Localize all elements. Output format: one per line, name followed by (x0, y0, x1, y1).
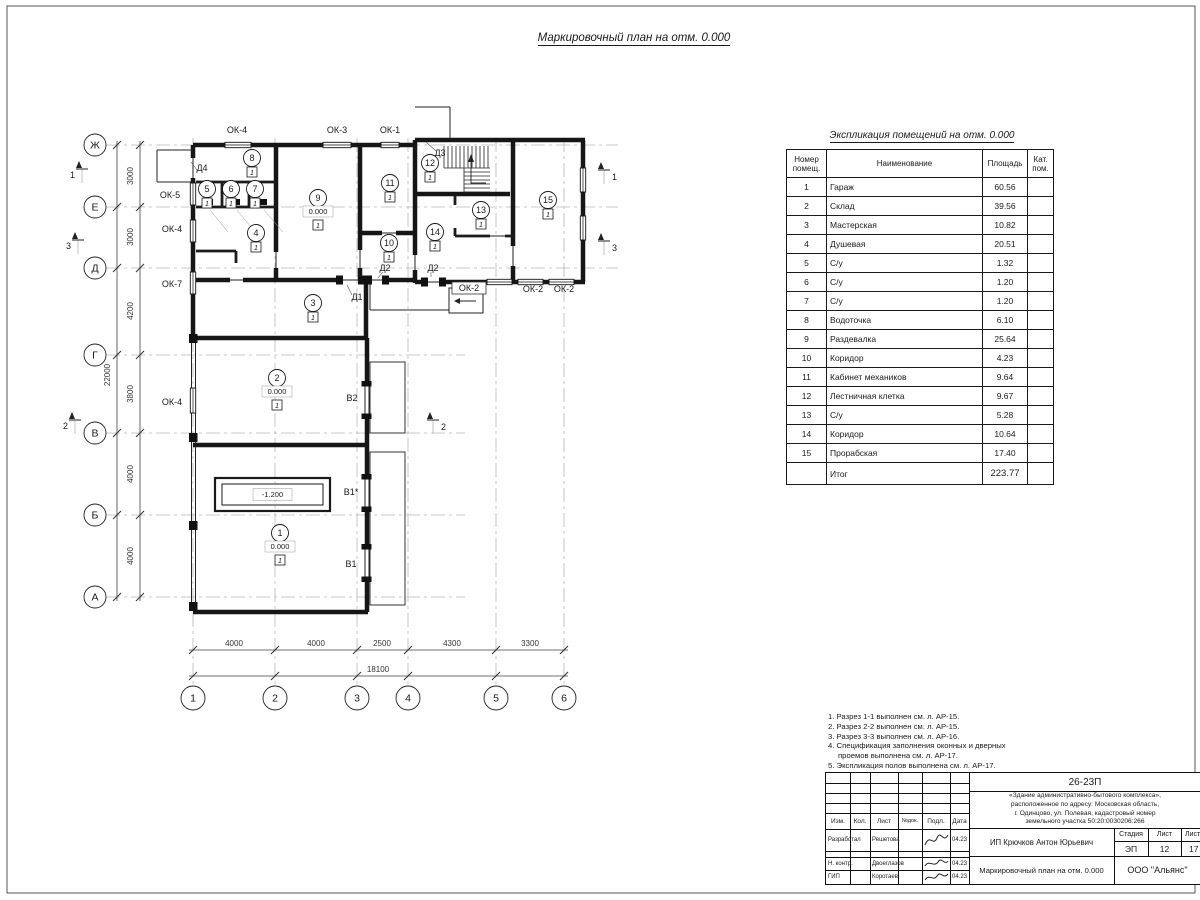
room-number-8: 8 (249, 153, 254, 163)
section-2-left: 2 (63, 421, 68, 431)
stamp-signature-gip (922, 870, 950, 884)
dim-left-3: 4200 (126, 302, 135, 320)
stamp-name-gip: Коротаев (870, 870, 922, 884)
section-1-left: 1 (70, 170, 75, 180)
axis-label-d: Д (91, 263, 98, 275)
dim-left-2: 3000 (126, 228, 135, 246)
note-line: 1. Разрез 1-1 выполнен см. л. АР-15. (828, 712, 1058, 722)
stamp-stage-label: Стадия (1114, 828, 1148, 841)
axis-label-b: Б (92, 510, 99, 522)
dimension-ticks (113, 141, 568, 680)
table-header-row: Номер помещ. Наименование Площадь Кат. п… (787, 150, 1054, 178)
stamp-date-ncontrol: 04.23 (950, 857, 969, 870)
svg-text:1: 1 (229, 201, 233, 208)
apron-upper (370, 362, 405, 433)
room-number-10: 10 (384, 238, 394, 248)
table-row: 4Душевая20.51 (787, 235, 1054, 254)
stamp-stage-value: ЭП (1114, 841, 1148, 856)
stamp-role-ncontrol: Н. контр. (826, 857, 870, 870)
room-schedule-title: Экспликация помещений на отм. 0.000 (786, 130, 1058, 141)
table-row: 5С/у1.32 (787, 254, 1054, 273)
room-number-13: 13 (476, 205, 486, 215)
title-block: Изм. Кол. Лист №док. Подл. Дата Разработ… (825, 772, 1200, 885)
axis-label-2: 2 (272, 693, 278, 705)
stamp-sheet-value: 12 (1148, 841, 1181, 856)
svg-text:1: 1 (253, 201, 257, 208)
stamp-col-kol: Кол. (850, 813, 870, 829)
drawing-sheet: { "sheet": { "plan_title": "Маркировочны… (0, 0, 1200, 900)
stamp-signature-developer (922, 829, 950, 851)
dim-bottom-3: 2500 (373, 639, 391, 648)
dimension-lines (117, 141, 568, 676)
window-label-ok4-left2: ОК-4 (162, 397, 182, 407)
section-3-right: 3 (612, 243, 617, 253)
stamp-date-developer: 04.23 (950, 829, 969, 851)
room-schedule-table: Номер помещ. Наименование Площадь Кат. п… (786, 149, 1054, 485)
svg-text:1: 1 (250, 170, 254, 177)
svg-text:1: 1 (428, 175, 432, 182)
stamp-sheet-label: Лист (1148, 828, 1181, 841)
section-3-left: 3 (66, 241, 71, 251)
section-markers: 1 3 2 1 3 2 (63, 161, 617, 434)
stamp-company: ООО "Альянс" (1114, 856, 1200, 884)
stamp-role-developer: Разработал (826, 829, 870, 851)
stamp-doc-number: 26-23П (969, 773, 1200, 791)
door-label-d1: Д1 (351, 292, 362, 302)
dim-bottom-5: 3300 (521, 639, 539, 648)
note-line: 5. Экспликация полов выполнена см. л. АР… (828, 761, 1058, 771)
axis-label-a: А (91, 592, 98, 604)
svg-text:1: 1 (388, 195, 392, 202)
stamp-name-ncontrol: Двоеглазов (870, 857, 922, 870)
col-header-num: Номер помещ. (787, 150, 827, 178)
stamp-sheets-value: 17 (1181, 841, 1200, 856)
stamp-col-list: Лист (870, 813, 898, 829)
gate-label-v1: В1 (345, 559, 356, 569)
svg-text:1: 1 (205, 201, 209, 208)
stamp-col-data: Дата (950, 813, 969, 829)
dim-left-total: 22000 (103, 363, 112, 386)
table-row: 14Коридор10.64 (787, 425, 1054, 444)
window-label-ok2c: ОК-2 (554, 284, 574, 294)
svg-text:1: 1 (254, 245, 258, 252)
window-label-ok4-left1: ОК-4 (162, 224, 182, 234)
table-row: 7С/у1.20 (787, 292, 1054, 311)
svg-text:1: 1 (433, 244, 437, 251)
room-number-14: 14 (430, 227, 440, 237)
note-line: проемов выполнена см. л. АР-17. (828, 751, 1058, 761)
table-row: 3Мастерская10.82 (787, 216, 1054, 235)
pit-elevation: -1.200 (262, 490, 283, 499)
note-line: 3. Разрез 3-3 выполнен см. л. АР-16. (828, 732, 1058, 742)
stamp-project-description: «Здание административно-бытового комплек… (969, 791, 1200, 828)
axis-label-1: 1 (190, 693, 196, 705)
stamp-name-developer: Решетова (870, 829, 922, 851)
window-label-ok4-top: ОК-4 (227, 125, 247, 135)
gate-label-v1s: В1* (344, 487, 359, 497)
window-label-ok7: ОК-7 (162, 279, 182, 289)
axis-label-5: 5 (493, 693, 499, 705)
room-number-12: 12 (425, 158, 435, 168)
svg-text:1: 1 (479, 222, 483, 229)
room-number-5: 5 (204, 184, 209, 194)
room-number-15: 15 (543, 195, 553, 205)
table-row: 11Кабинет механиков9.64 (787, 368, 1054, 387)
signature-icon (923, 858, 949, 869)
dim-left-5: 4000 (126, 465, 135, 483)
door-label-d4: Д4 (196, 163, 207, 173)
axis-label-3: 3 (354, 693, 360, 705)
door-label-d2b: Д2 (427, 263, 438, 273)
table-row: 13С/у5.28 (787, 406, 1054, 425)
dim-left-4: 3800 (126, 385, 135, 403)
door-label-d2a: Д2 (379, 263, 390, 273)
room-number-1: 1 (277, 528, 282, 538)
table-row: 6С/у1.20 (787, 273, 1054, 292)
room-number-4: 4 (253, 228, 258, 238)
col-header-area: Площадь (983, 150, 1028, 178)
window-label-ok2a: ОК-2 (459, 283, 479, 293)
svg-text:1: 1 (278, 558, 282, 565)
stamp-client: ИП Крючков Антон Юрьевич (969, 828, 1114, 856)
gate-label-v2: В2 (346, 393, 357, 403)
table-row: 12Лестничная клетка9.67 (787, 387, 1054, 406)
room-number-3: 3 (310, 298, 315, 308)
total-area: 223.77 (983, 463, 1028, 485)
room-2-elevation: 0.000 (268, 387, 287, 396)
apron-lower (370, 452, 405, 605)
signature-icon (923, 871, 949, 883)
stamp-signature-ncontrol (922, 857, 950, 870)
stamp-drawing-title: Маркировочный план на отм. 0.000 (969, 856, 1114, 884)
walls-exterior (193, 140, 585, 612)
notes: 1. Разрез 1-1 выполнен см. л. АР-15. 2. … (828, 712, 1058, 771)
table-row: 8Водоточка6.10 (787, 311, 1054, 330)
signature-icon (923, 831, 949, 849)
room-number-11: 11 (385, 178, 394, 188)
svg-text:1: 1 (387, 255, 391, 262)
axis-label-e: Е (91, 202, 98, 214)
room-number-2: 2 (274, 373, 279, 383)
note-line: 2. Разрез 2-2 выполнен см. л. АР-15. (828, 722, 1058, 732)
dim-left-1: 3000 (126, 167, 135, 185)
stamp-sheets-label: Листов (1181, 828, 1200, 841)
stairs (444, 146, 490, 194)
axis-label-v: В (91, 428, 98, 440)
window-label-ok2b: ОК-2 (523, 284, 543, 294)
room-number-7: 7 (252, 184, 257, 194)
total-label: Итог (827, 463, 983, 485)
axis-label-zh: Ж (90, 140, 100, 152)
col-axis-bubbles (181, 686, 576, 710)
section-1-right: 1 (612, 172, 617, 182)
stamp-col-ndok: №док. (898, 813, 922, 829)
table-row: 1Гараж60.56 (787, 178, 1054, 197)
dim-bottom-total: 18100 (367, 665, 390, 674)
section-2-right: 2 (441, 422, 446, 432)
stamp-col-izm: Изм. (826, 813, 850, 829)
page-title: Маркировочный план на отм. 0.000 (452, 32, 816, 44)
fixture-leaders (210, 210, 283, 232)
stamp-date-gip: 04.23 (950, 870, 969, 884)
svg-text:1: 1 (311, 315, 315, 322)
table-total-row: Итог 223.77 (787, 463, 1054, 485)
dim-bottom-2: 4000 (307, 639, 325, 648)
dim-bottom-1: 4000 (225, 639, 243, 648)
note-line: 4. Спецификация заполнения оконных и две… (828, 741, 1058, 751)
stamp-col-podl: Подл. (922, 813, 950, 829)
svg-text:1: 1 (275, 403, 279, 410)
dim-bottom-4: 4300 (443, 639, 461, 648)
wall-piers (189, 199, 446, 611)
window-label-ok3: ОК-3 (327, 125, 347, 135)
entry-arrowhead (454, 298, 460, 304)
table-row: 10Коридор4.23 (787, 349, 1054, 368)
svg-text:1: 1 (316, 223, 320, 230)
door-leaders (191, 142, 436, 295)
stamp-role-gip: ГИП (826, 870, 870, 884)
col-header-name: Наименование (827, 150, 983, 178)
window-label-ok1: ОК-1 (380, 125, 400, 135)
room-number-9: 9 (315, 193, 320, 203)
stair-arrowhead (468, 154, 474, 162)
axis-label-6: 6 (561, 693, 567, 705)
table-row: 9Раздевалка25.64 (787, 330, 1054, 349)
svg-text:1: 1 (546, 212, 550, 219)
room-number-6: 6 (228, 184, 233, 194)
axis-label-4: 4 (405, 693, 411, 705)
room-1-elevation: 0.000 (271, 542, 290, 551)
table-row: 15Прорабская17.40 (787, 444, 1054, 463)
table-row: 2Склад39.56 (787, 197, 1054, 216)
col-header-cat: Кат. пом. (1028, 150, 1054, 178)
dim-left-6: 4000 (126, 547, 135, 565)
axis-label-g: Г (92, 350, 98, 362)
window-label-ok5: ОК-5 (160, 190, 180, 200)
room-9-elevation: 0.000 (309, 207, 328, 216)
